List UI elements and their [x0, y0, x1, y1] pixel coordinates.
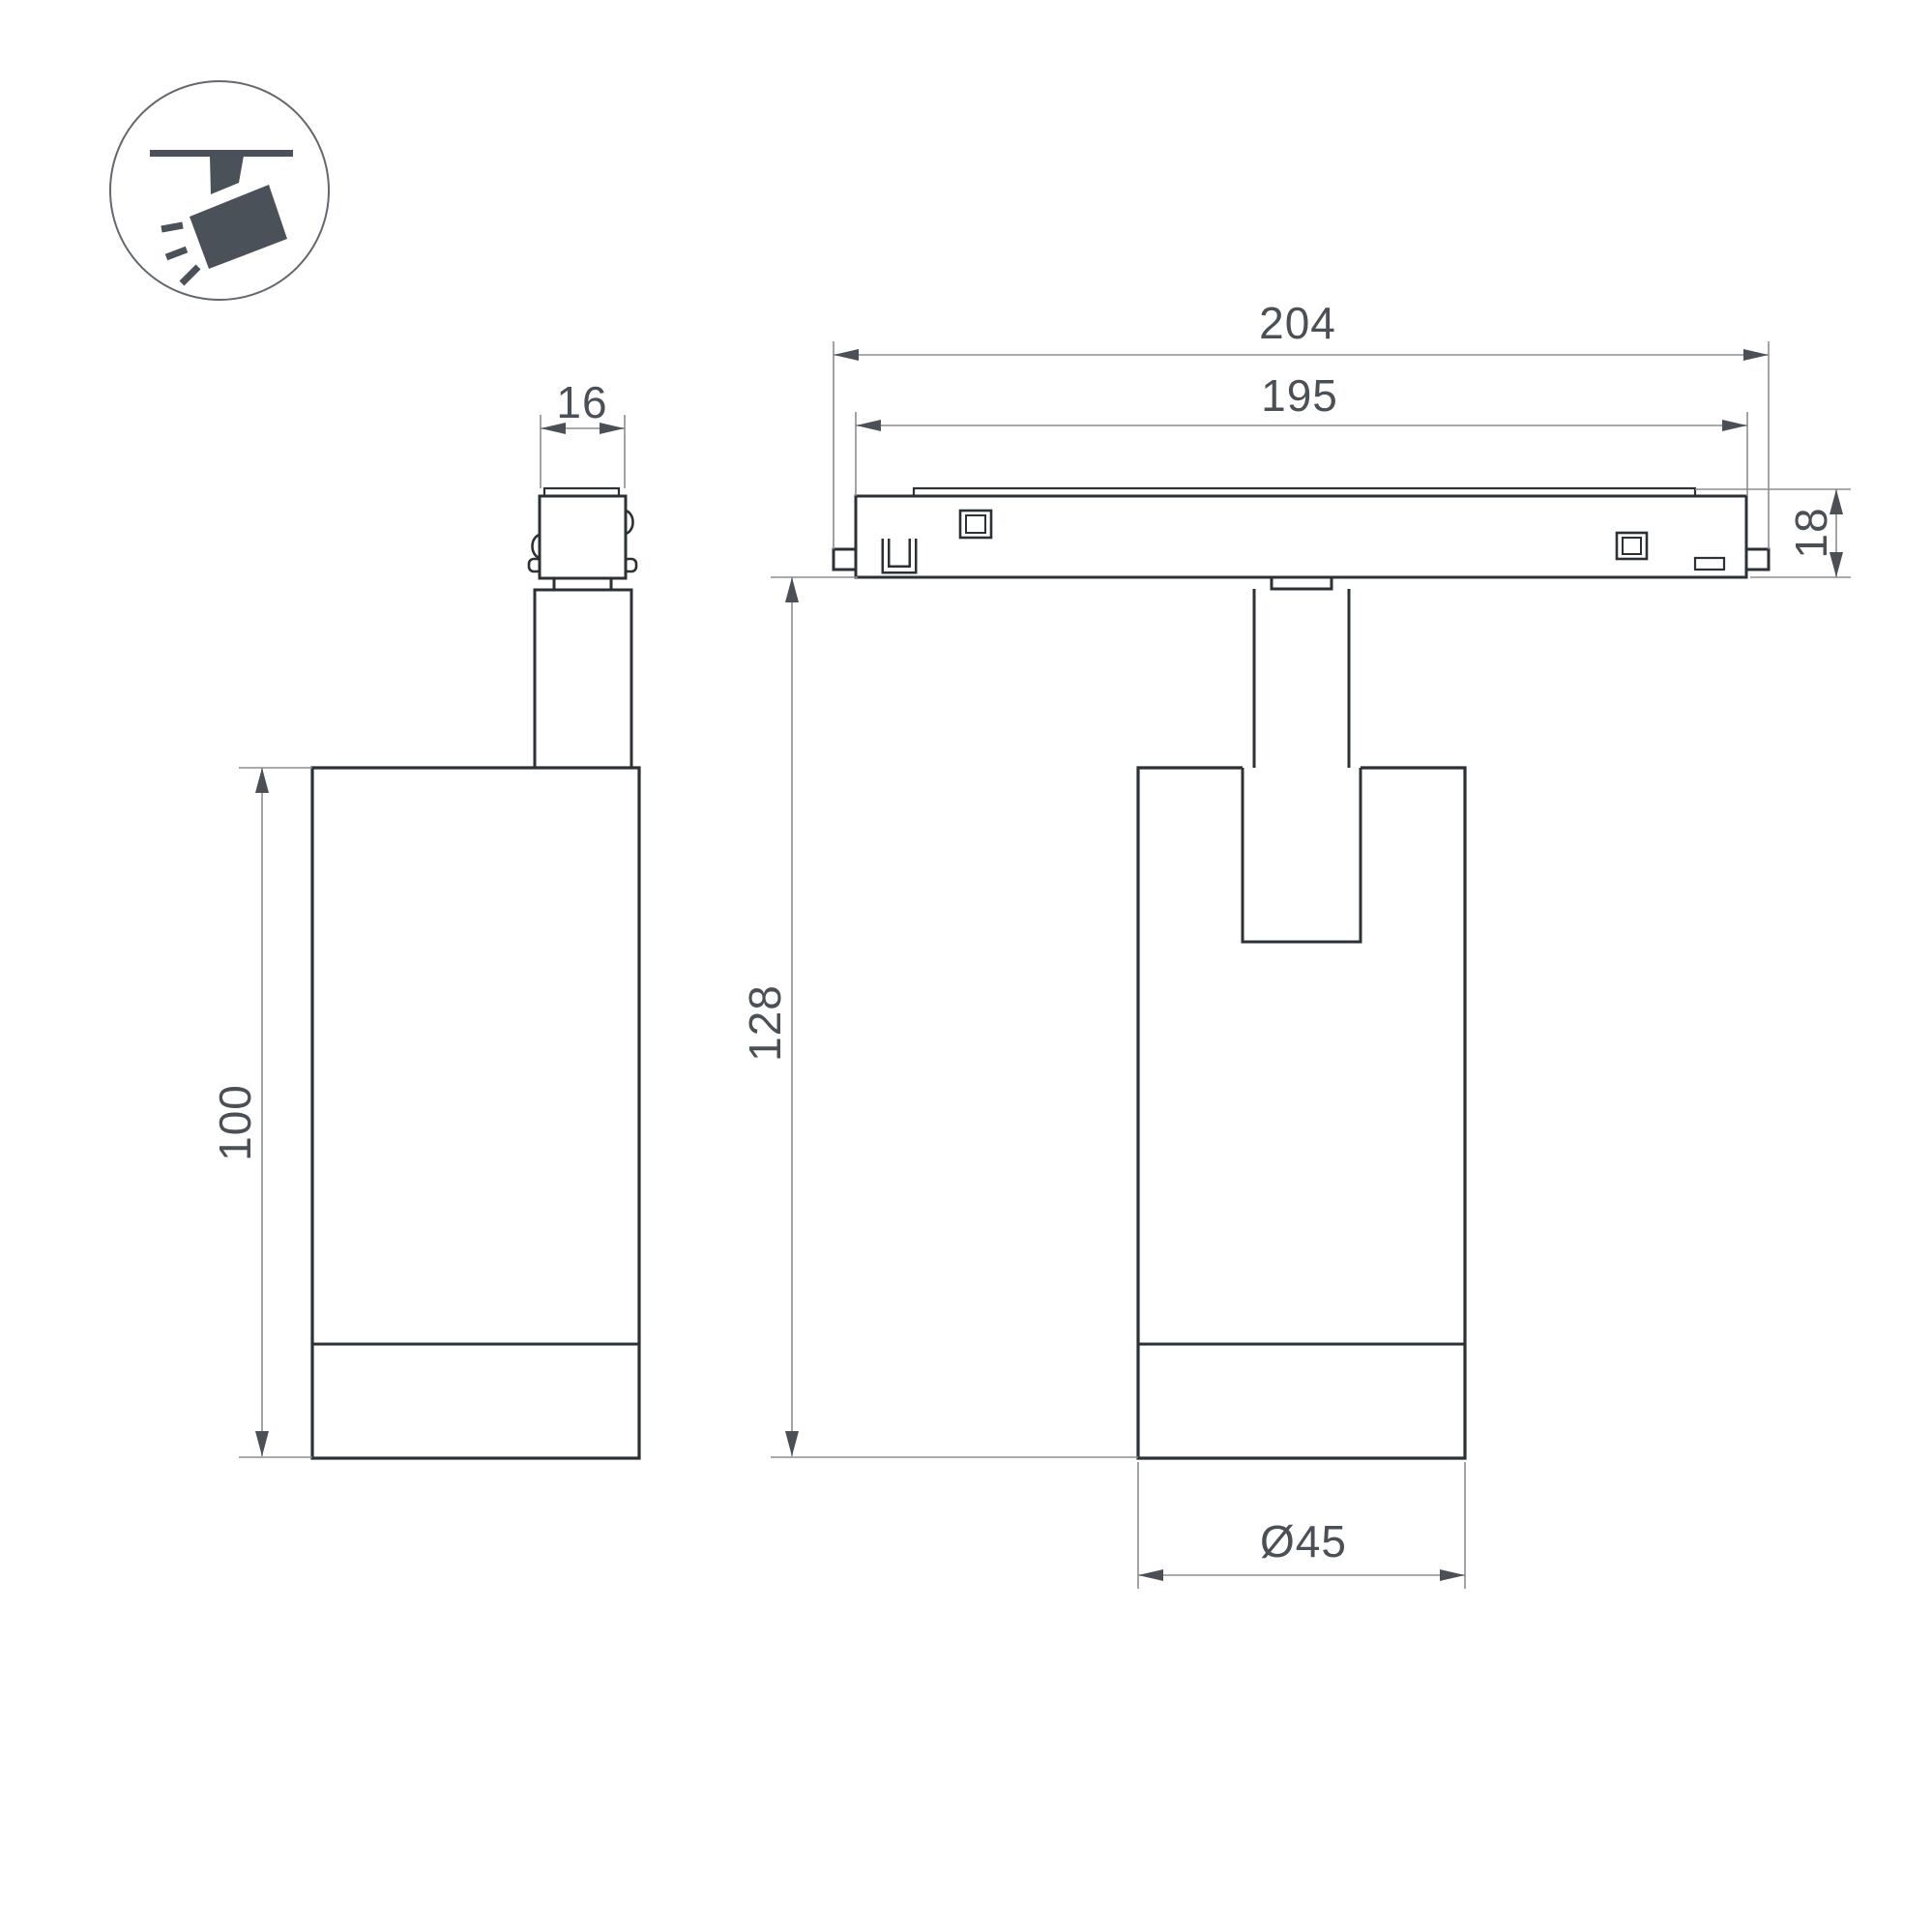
dim-18-label: 18	[1786, 507, 1836, 558]
dim-195: 195	[856, 370, 1747, 496]
light-ray-icon	[161, 225, 183, 229]
front-bar-window-right-inner	[1623, 538, 1641, 554]
dim-128-arrow-top	[785, 577, 799, 602]
side-neck	[554, 578, 611, 590]
dim-128-label: 128	[740, 984, 790, 1062]
dim-128: 128	[740, 577, 1138, 1457]
technical-drawing-page: 16 100 204 195 18	[0, 0, 1932, 1932]
dim-100-label: 100	[210, 1084, 260, 1161]
dim-45-arrow-left	[1138, 1569, 1163, 1581]
front-bar-slot-detail	[1695, 558, 1724, 570]
side-adapter-body	[540, 496, 626, 578]
front-track-left-tab	[834, 549, 856, 570]
dim-195-arrow-right	[1722, 420, 1747, 431]
technical-drawing: 16 100 204 195 18	[0, 0, 1932, 1932]
dim-16: 16	[541, 377, 625, 488]
front-bar-window-left-inner	[966, 515, 985, 533]
front-neck	[1272, 577, 1332, 589]
front-lamp-body	[1138, 768, 1465, 1458]
side-lamp-body	[312, 768, 639, 1458]
track-light-icon	[110, 81, 329, 300]
front-view	[834, 488, 1769, 1458]
dim-100-arrow-bottom	[255, 1431, 269, 1456]
dim-16-label: 16	[556, 377, 607, 427]
icon-ceiling-track	[150, 150, 293, 157]
dim-204-label: 204	[1259, 298, 1336, 348]
dim-45-label: Ø45	[1260, 1516, 1347, 1566]
dim-128-arrow-bottom	[785, 1431, 799, 1456]
dim-100: 100	[210, 768, 312, 1457]
dim-195-arrow-left	[856, 420, 881, 431]
dim-195-label: 195	[1261, 370, 1338, 421]
dim-45: Ø45	[1138, 1462, 1465, 1589]
dim-204-arrow-left	[834, 349, 859, 361]
dim-100-arrow-top	[255, 768, 269, 793]
front-track-right-tab	[1746, 549, 1769, 570]
side-view	[312, 488, 639, 1458]
side-stem	[535, 590, 631, 768]
dim-45-arrow-right	[1440, 1569, 1465, 1581]
dim-204-arrow-right	[1743, 349, 1769, 361]
